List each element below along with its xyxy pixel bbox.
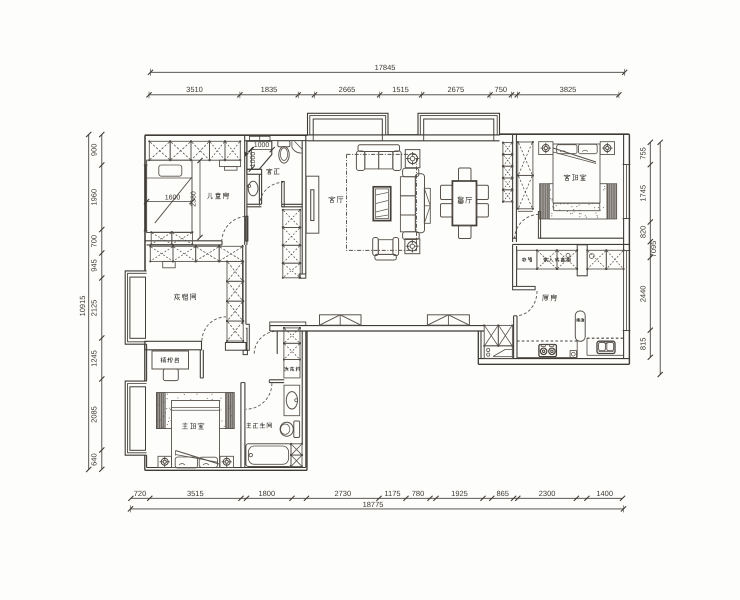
svg-text:1175: 1175 [384,489,400,498]
svg-text:2300: 2300 [539,489,556,498]
svg-text:815: 815 [639,338,648,351]
svg-text:3825: 3825 [560,85,577,94]
svg-text:3510: 3510 [186,85,203,94]
svg-text:1400: 1400 [596,489,613,498]
svg-text:2085: 2085 [90,406,99,423]
svg-text:945: 945 [90,259,99,272]
svg-text:1000: 1000 [250,152,257,168]
svg-text:1245: 1245 [90,350,99,367]
svg-text:10915: 10915 [78,296,87,317]
svg-text:18775: 18775 [363,500,384,509]
svg-text:3515: 3515 [187,489,204,498]
svg-text:1000: 1000 [254,142,270,149]
svg-text:2125: 2125 [90,300,99,317]
svg-text:1925: 1925 [451,489,468,498]
svg-text:900: 900 [90,144,99,157]
svg-text:865: 865 [496,489,509,498]
svg-text:780: 780 [412,489,425,498]
svg-text:720: 720 [134,489,147,498]
svg-text:1600: 1600 [165,194,181,201]
svg-text:640: 640 [90,453,99,466]
svg-text:2665: 2665 [339,85,356,94]
svg-text:1745: 1745 [639,185,648,202]
svg-text:1515: 1515 [392,85,409,94]
svg-text:1960: 1960 [90,189,99,206]
svg-text:1835: 1835 [261,85,278,94]
svg-text:1800: 1800 [258,489,275,498]
svg-text:2675: 2675 [447,85,464,94]
svg-text:17845: 17845 [375,63,396,72]
svg-text:2440: 2440 [639,286,648,303]
svg-text:2730: 2730 [334,489,351,498]
svg-text:750: 750 [495,85,508,94]
svg-text:755: 755 [639,147,648,160]
svg-text:2380: 2380 [190,191,197,207]
svg-text:700: 700 [90,235,99,248]
svg-text:820: 820 [639,226,648,239]
svg-text:7095: 7095 [649,241,658,258]
